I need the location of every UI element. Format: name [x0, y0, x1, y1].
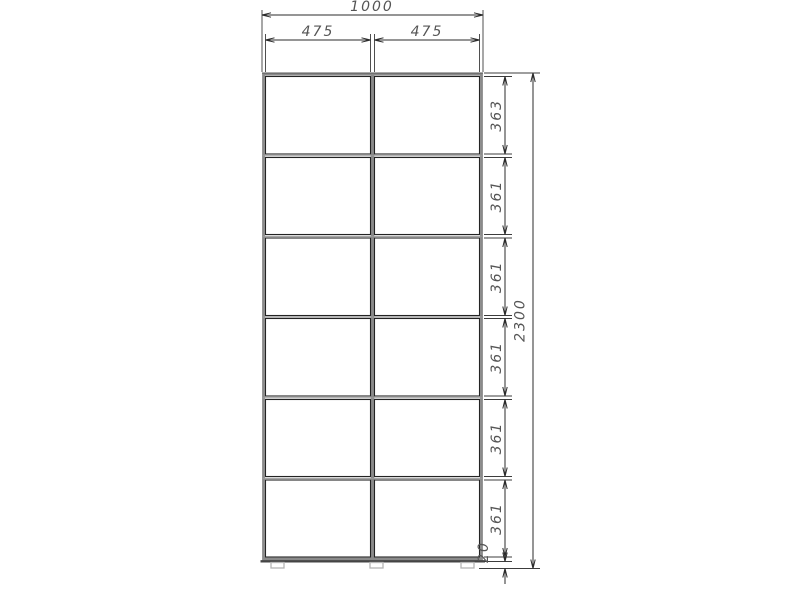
cabinet-body	[261, 73, 486, 568]
cabinet-cell	[375, 77, 480, 155]
dim-label-cell-2: 361	[489, 180, 505, 213]
drawing-canvas: 1000 475 475	[0, 0, 800, 600]
dim-group-horizontal: 1000 475 475	[262, 0, 483, 72]
dim-label-left-column: 475	[302, 24, 335, 40]
dim-label-cell-5: 361	[489, 422, 505, 455]
cabinet-cell	[375, 319, 480, 397]
cabinet-cell	[266, 480, 371, 557]
cabinet-cell	[375, 480, 480, 557]
dim-cell-1: 363	[489, 77, 507, 155]
cabinet-cell	[375, 238, 480, 316]
dim-label-bottom-clearance: 20	[476, 541, 492, 563]
dim-right-column-width: 475	[375, 24, 480, 42]
cabinet-cell	[375, 158, 480, 235]
dim-bottom-clearance: 20	[476, 541, 507, 584]
cabinet-feet	[271, 563, 474, 569]
dim-label-right-column: 475	[411, 24, 444, 40]
dim-cell-2: 361	[489, 158, 507, 235]
cabinet-cell	[266, 400, 371, 477]
cabinet-cell	[266, 158, 371, 235]
dim-label-cell-6: 361	[489, 502, 505, 535]
dim-left-column-width: 475	[266, 24, 371, 42]
cabinet-cell	[266, 77, 371, 155]
dim-label-cell-1: 363	[489, 99, 505, 132]
dim-label-overall-width: 1000	[350, 0, 394, 15]
cabinet-foot	[370, 563, 383, 569]
cabinet-foot	[271, 563, 284, 569]
dim-group-vertical: 363 361 361 361	[476, 73, 540, 584]
dim-cell-4: 361	[489, 319, 507, 397]
cabinet-foot	[461, 563, 474, 569]
dim-cell-3: 361	[489, 238, 507, 316]
dim-label-cell-3: 361	[489, 260, 505, 293]
technical-drawing: 1000 475 475	[0, 0, 800, 600]
dim-overall-height: 2300	[513, 73, 536, 569]
cabinet-cell	[266, 238, 371, 316]
dim-label-cell-4: 361	[489, 341, 505, 374]
dim-overall-width: 1000	[262, 0, 483, 17]
cabinet-cell	[375, 400, 480, 477]
cabinet-cell	[266, 319, 371, 397]
dim-cell-5: 361	[489, 400, 507, 477]
dim-label-overall-height: 2300	[513, 298, 529, 342]
